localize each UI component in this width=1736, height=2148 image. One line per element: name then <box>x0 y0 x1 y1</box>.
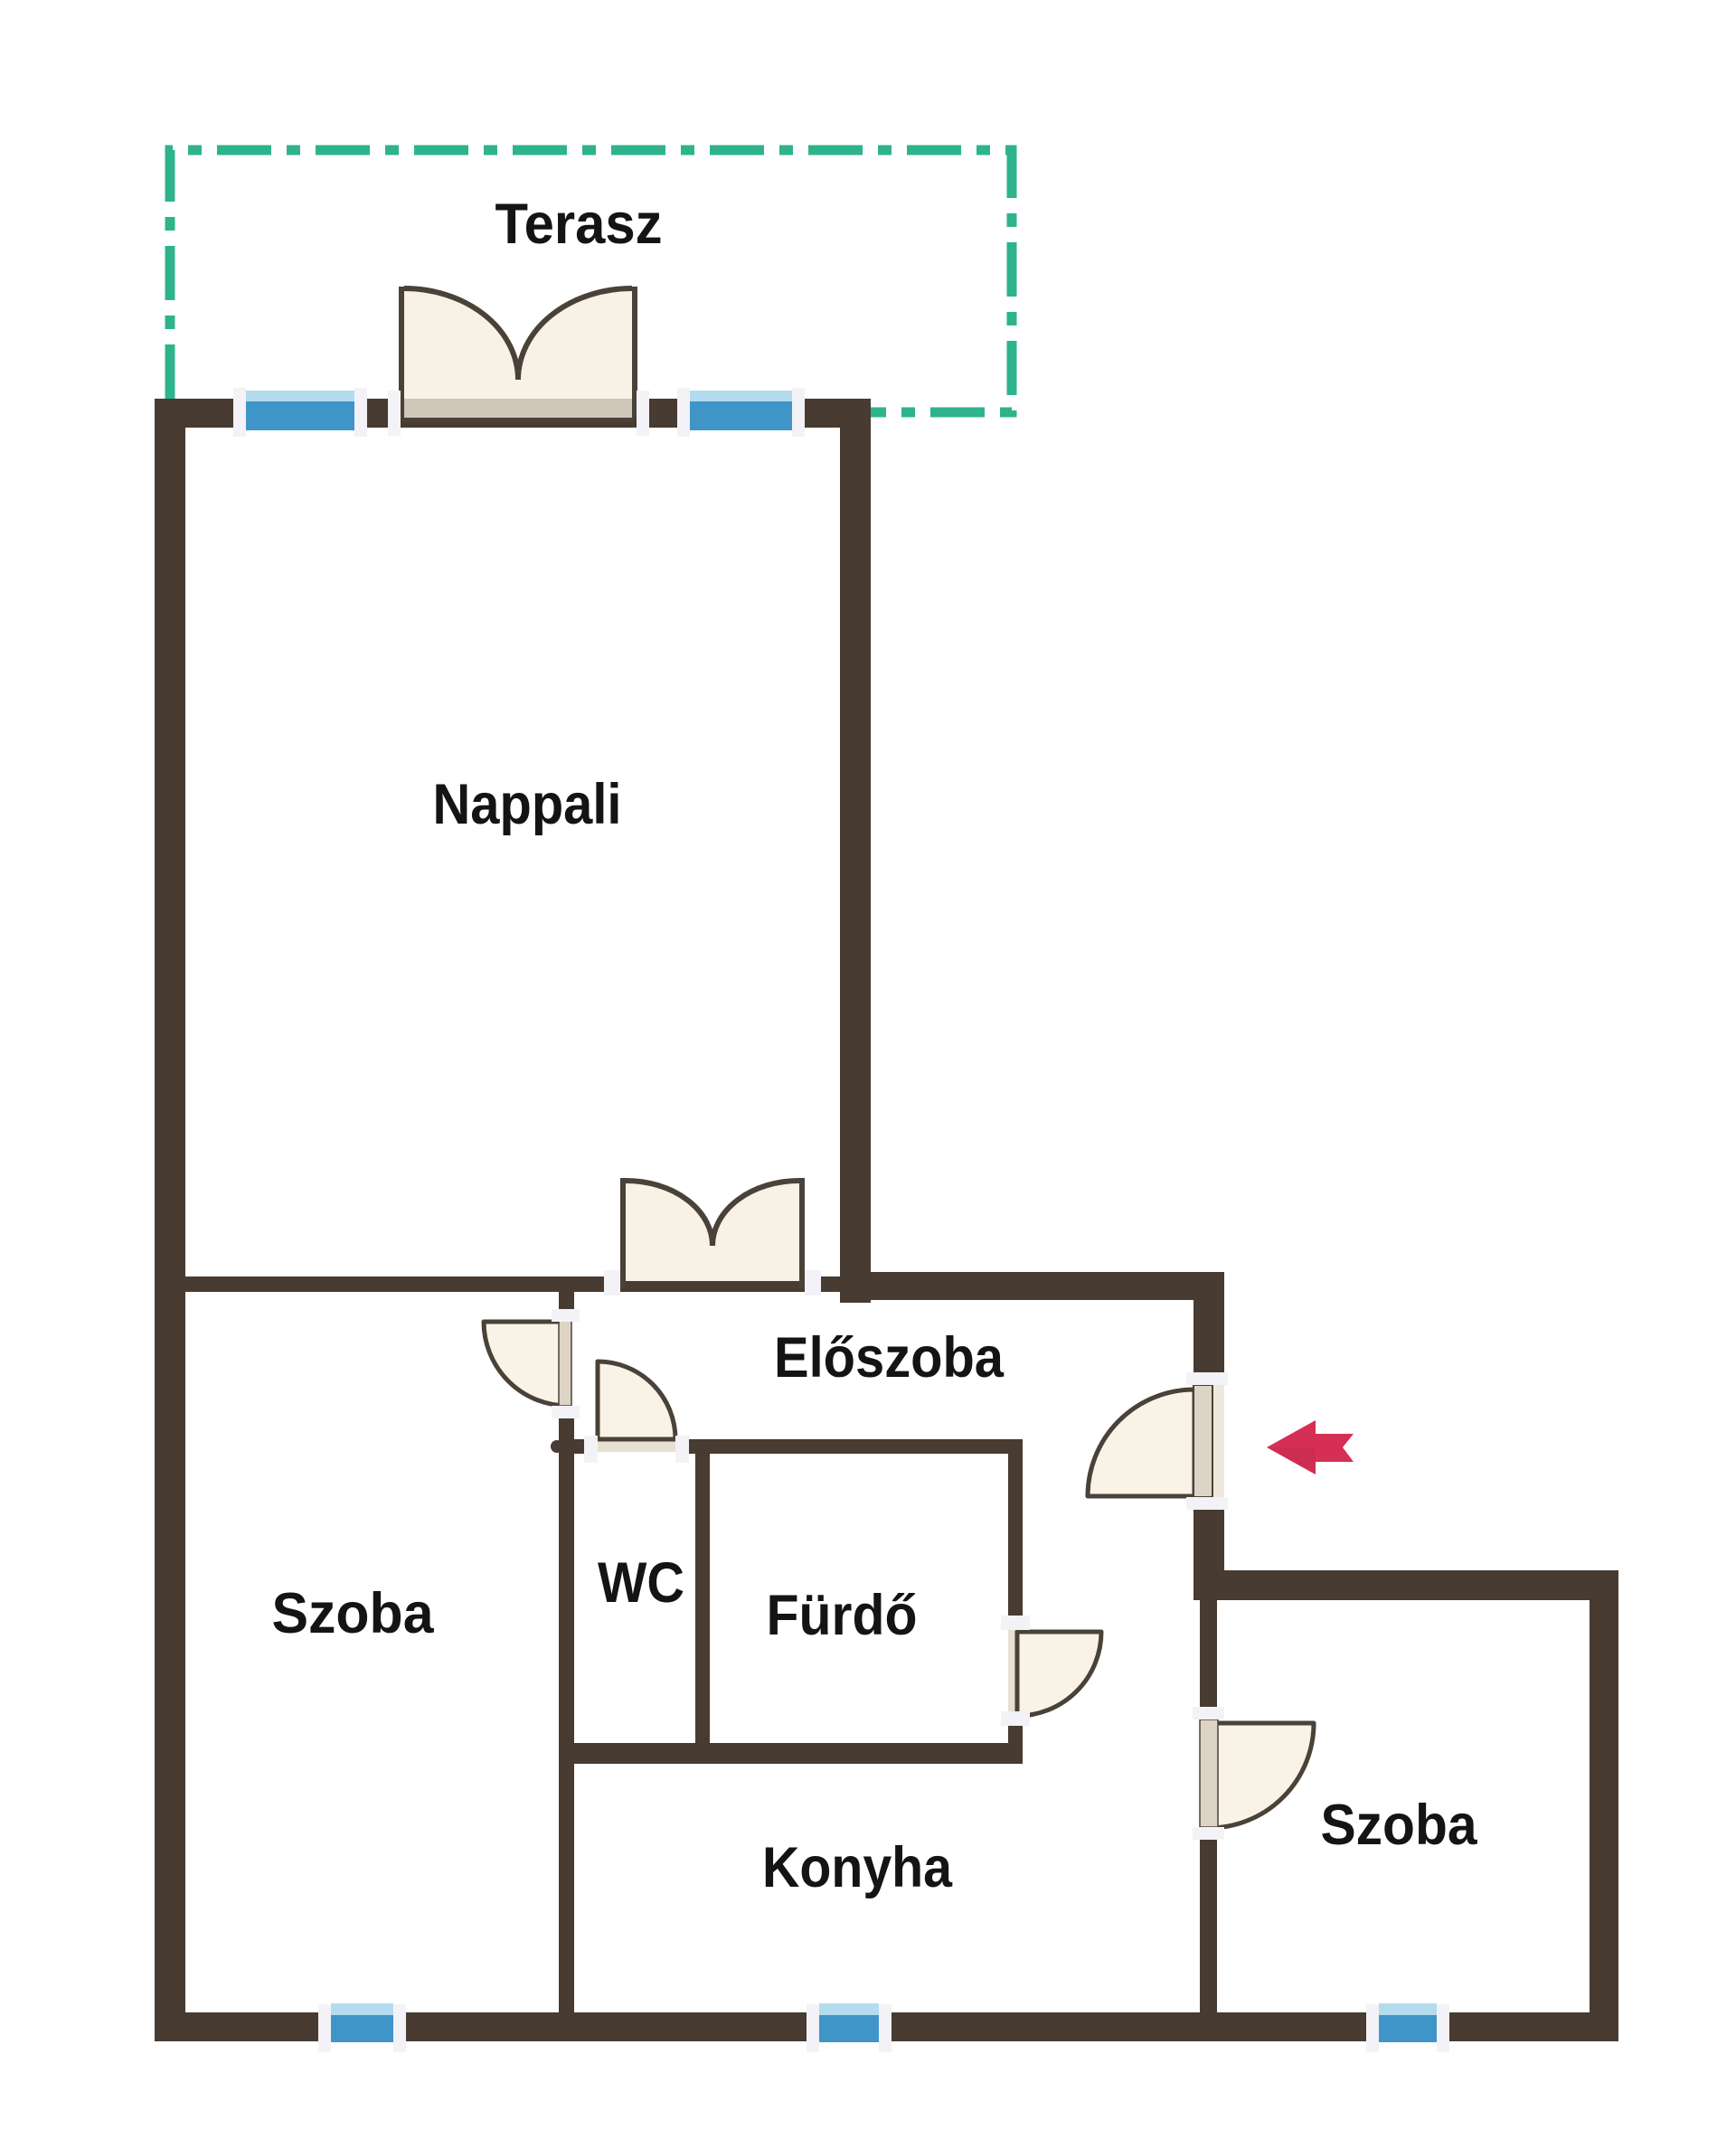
svg-text:Konyha: Konyha <box>762 1836 953 1899</box>
svg-text:Szoba: Szoba <box>1321 1794 1478 1857</box>
svg-text:Szoba: Szoba <box>272 1582 435 1645</box>
svg-text:Előszoba: Előszoba <box>774 1326 1005 1390</box>
svg-text:Nappali: Nappali <box>433 773 622 836</box>
svg-text:WC: WC <box>598 1551 684 1615</box>
svg-text:Fürdő: Fürdő <box>767 1584 918 1647</box>
svg-text:Terasz: Terasz <box>495 193 663 256</box>
